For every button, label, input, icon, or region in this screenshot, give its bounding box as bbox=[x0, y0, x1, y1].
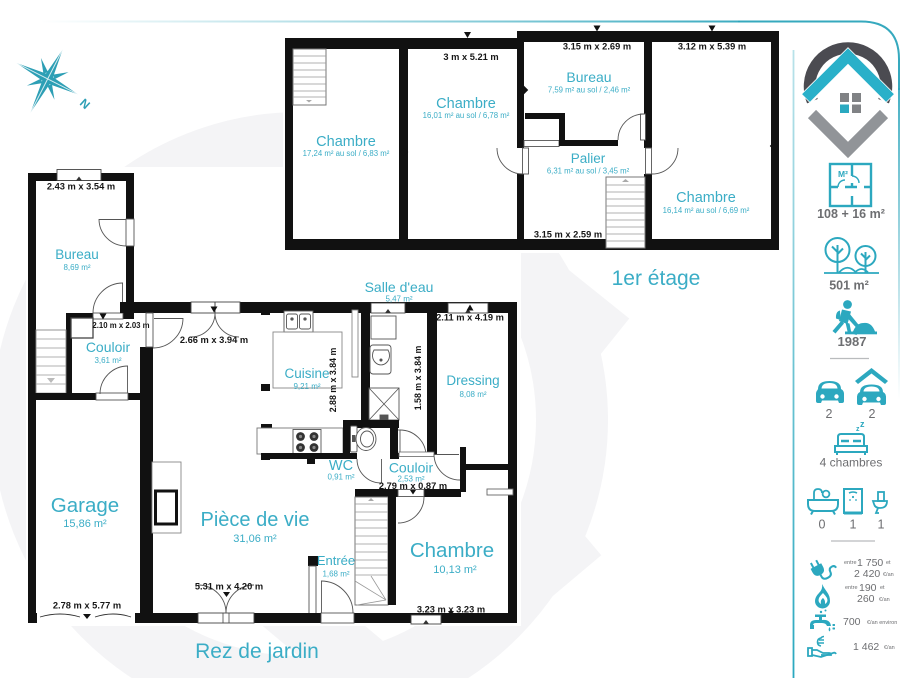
svg-text:Rez de jardin: Rez de jardin bbox=[195, 640, 319, 663]
svg-text:2 420: 2 420 bbox=[854, 568, 880, 580]
svg-text:et: et bbox=[880, 585, 885, 591]
svg-text:3 m x 5.21 m: 3 m x 5.21 m bbox=[443, 52, 498, 62]
svg-text:0,91 m²: 0,91 m² bbox=[327, 473, 354, 482]
svg-text:Palier: Palier bbox=[571, 151, 606, 166]
svg-text:0: 0 bbox=[819, 518, 826, 532]
svg-text:Pièce de vie: Pièce de vie bbox=[201, 509, 310, 531]
svg-text:Chambre: Chambre bbox=[676, 190, 736, 206]
svg-text:2: 2 bbox=[826, 407, 833, 421]
svg-text:17,24 m² au sol / 6,83 m²: 17,24 m² au sol / 6,83 m² bbox=[303, 149, 390, 158]
svg-text:5,47 m²: 5,47 m² bbox=[385, 295, 412, 304]
svg-text:et: et bbox=[886, 560, 891, 566]
svg-text:Garage: Garage bbox=[51, 494, 119, 517]
svg-text:2.10 m x 2.03 m: 2.10 m x 2.03 m bbox=[92, 321, 149, 330]
svg-text:2.79 m x 0.87 m: 2.79 m x 0.87 m bbox=[379, 481, 447, 491]
svg-text:1987: 1987 bbox=[838, 334, 867, 349]
svg-text:entre: entre bbox=[844, 560, 857, 566]
svg-text:2.11 m x 4.19 m: 2.11 m x 4.19 m bbox=[436, 313, 504, 323]
svg-text:Couloir: Couloir bbox=[389, 460, 434, 476]
svg-text:Chambre: Chambre bbox=[410, 539, 494, 562]
svg-text:3,61 m²: 3,61 m² bbox=[94, 356, 121, 365]
svg-text:Chambre: Chambre bbox=[316, 134, 376, 150]
svg-text:3.23 m x 3.23 m: 3.23 m x 3.23 m bbox=[417, 605, 485, 615]
svg-text:Chambre: Chambre bbox=[436, 96, 496, 112]
svg-text:108 + 16 m²: 108 + 16 m² bbox=[817, 207, 885, 221]
svg-text:31,06 m²: 31,06 m² bbox=[233, 533, 277, 545]
svg-text:8,69 m²: 8,69 m² bbox=[63, 263, 90, 272]
svg-text:15,86 m²: 15,86 m² bbox=[63, 518, 107, 530]
svg-text:1: 1 bbox=[878, 518, 885, 532]
svg-text:€/an: €/an bbox=[884, 645, 895, 651]
svg-text:z: z bbox=[860, 419, 865, 429]
svg-text:2.43 m x 3.54 m: 2.43 m x 3.54 m bbox=[47, 182, 115, 192]
svg-text:2.88 m x 3.84 m: 2.88 m x 3.84 m bbox=[328, 348, 338, 413]
svg-text:2.78 m x 5.77 m: 2.78 m x 5.77 m bbox=[53, 601, 121, 611]
svg-text:1 462: 1 462 bbox=[853, 641, 879, 653]
svg-text:1.58 m x 3.84 m: 1.58 m x 3.84 m bbox=[413, 346, 423, 411]
svg-text:3.15 m x 2.59 m: 3.15 m x 2.59 m bbox=[534, 230, 602, 240]
svg-text:1er étage: 1er étage bbox=[612, 267, 701, 290]
svg-text:Dressing: Dressing bbox=[446, 373, 499, 388]
svg-text:€/an environ: €/an environ bbox=[867, 620, 897, 626]
svg-text:€/an: €/an bbox=[879, 597, 890, 603]
svg-text:16,01 m² au sol / 6,78 m²: 16,01 m² au sol / 6,78 m² bbox=[423, 111, 510, 120]
svg-text:3.15 m x 2.69 m: 3.15 m x 2.69 m bbox=[563, 42, 631, 52]
svg-text:2: 2 bbox=[869, 407, 876, 421]
svg-text:9,21 m²: 9,21 m² bbox=[293, 382, 320, 391]
svg-text:Bureau: Bureau bbox=[55, 247, 99, 262]
svg-text:€/an: €/an bbox=[883, 572, 894, 578]
svg-text:8,08 m²: 8,08 m² bbox=[459, 390, 486, 399]
svg-text:entre: entre bbox=[845, 585, 858, 591]
svg-text:501 m²: 501 m² bbox=[829, 279, 869, 293]
svg-text:Entrée: Entrée bbox=[317, 553, 355, 568]
svg-text:Cuisine: Cuisine bbox=[284, 366, 329, 381]
svg-text:1,68 m²: 1,68 m² bbox=[322, 570, 349, 579]
svg-text:2.66 m x 3.94 m: 2.66 m x 3.94 m bbox=[180, 335, 248, 345]
svg-text:260: 260 bbox=[857, 593, 875, 605]
svg-text:10,13 m²: 10,13 m² bbox=[433, 564, 477, 576]
svg-text:Couloir: Couloir bbox=[86, 339, 131, 355]
svg-text:5.31 m x 4.20 m: 5.31 m x 4.20 m bbox=[195, 582, 263, 592]
svg-text:Bureau: Bureau bbox=[566, 69, 611, 85]
svg-text:1: 1 bbox=[850, 518, 857, 532]
svg-text:3.12 m x 5.39 m: 3.12 m x 5.39 m bbox=[678, 42, 746, 52]
svg-text:16,14 m² au sol / 6,69 m²: 16,14 m² au sol / 6,69 m² bbox=[663, 206, 750, 215]
svg-text:700: 700 bbox=[843, 616, 861, 628]
svg-text:7,59 m² au sol / 2,46 m²: 7,59 m² au sol / 2,46 m² bbox=[548, 86, 631, 95]
svg-text:Salle d'eau: Salle d'eau bbox=[365, 279, 434, 295]
svg-text:4 chambres: 4 chambres bbox=[820, 456, 883, 470]
svg-text:6,31 m² au sol / 3,45 m²: 6,31 m² au sol / 3,45 m² bbox=[547, 167, 630, 176]
svg-text:M²: M² bbox=[838, 169, 848, 179]
